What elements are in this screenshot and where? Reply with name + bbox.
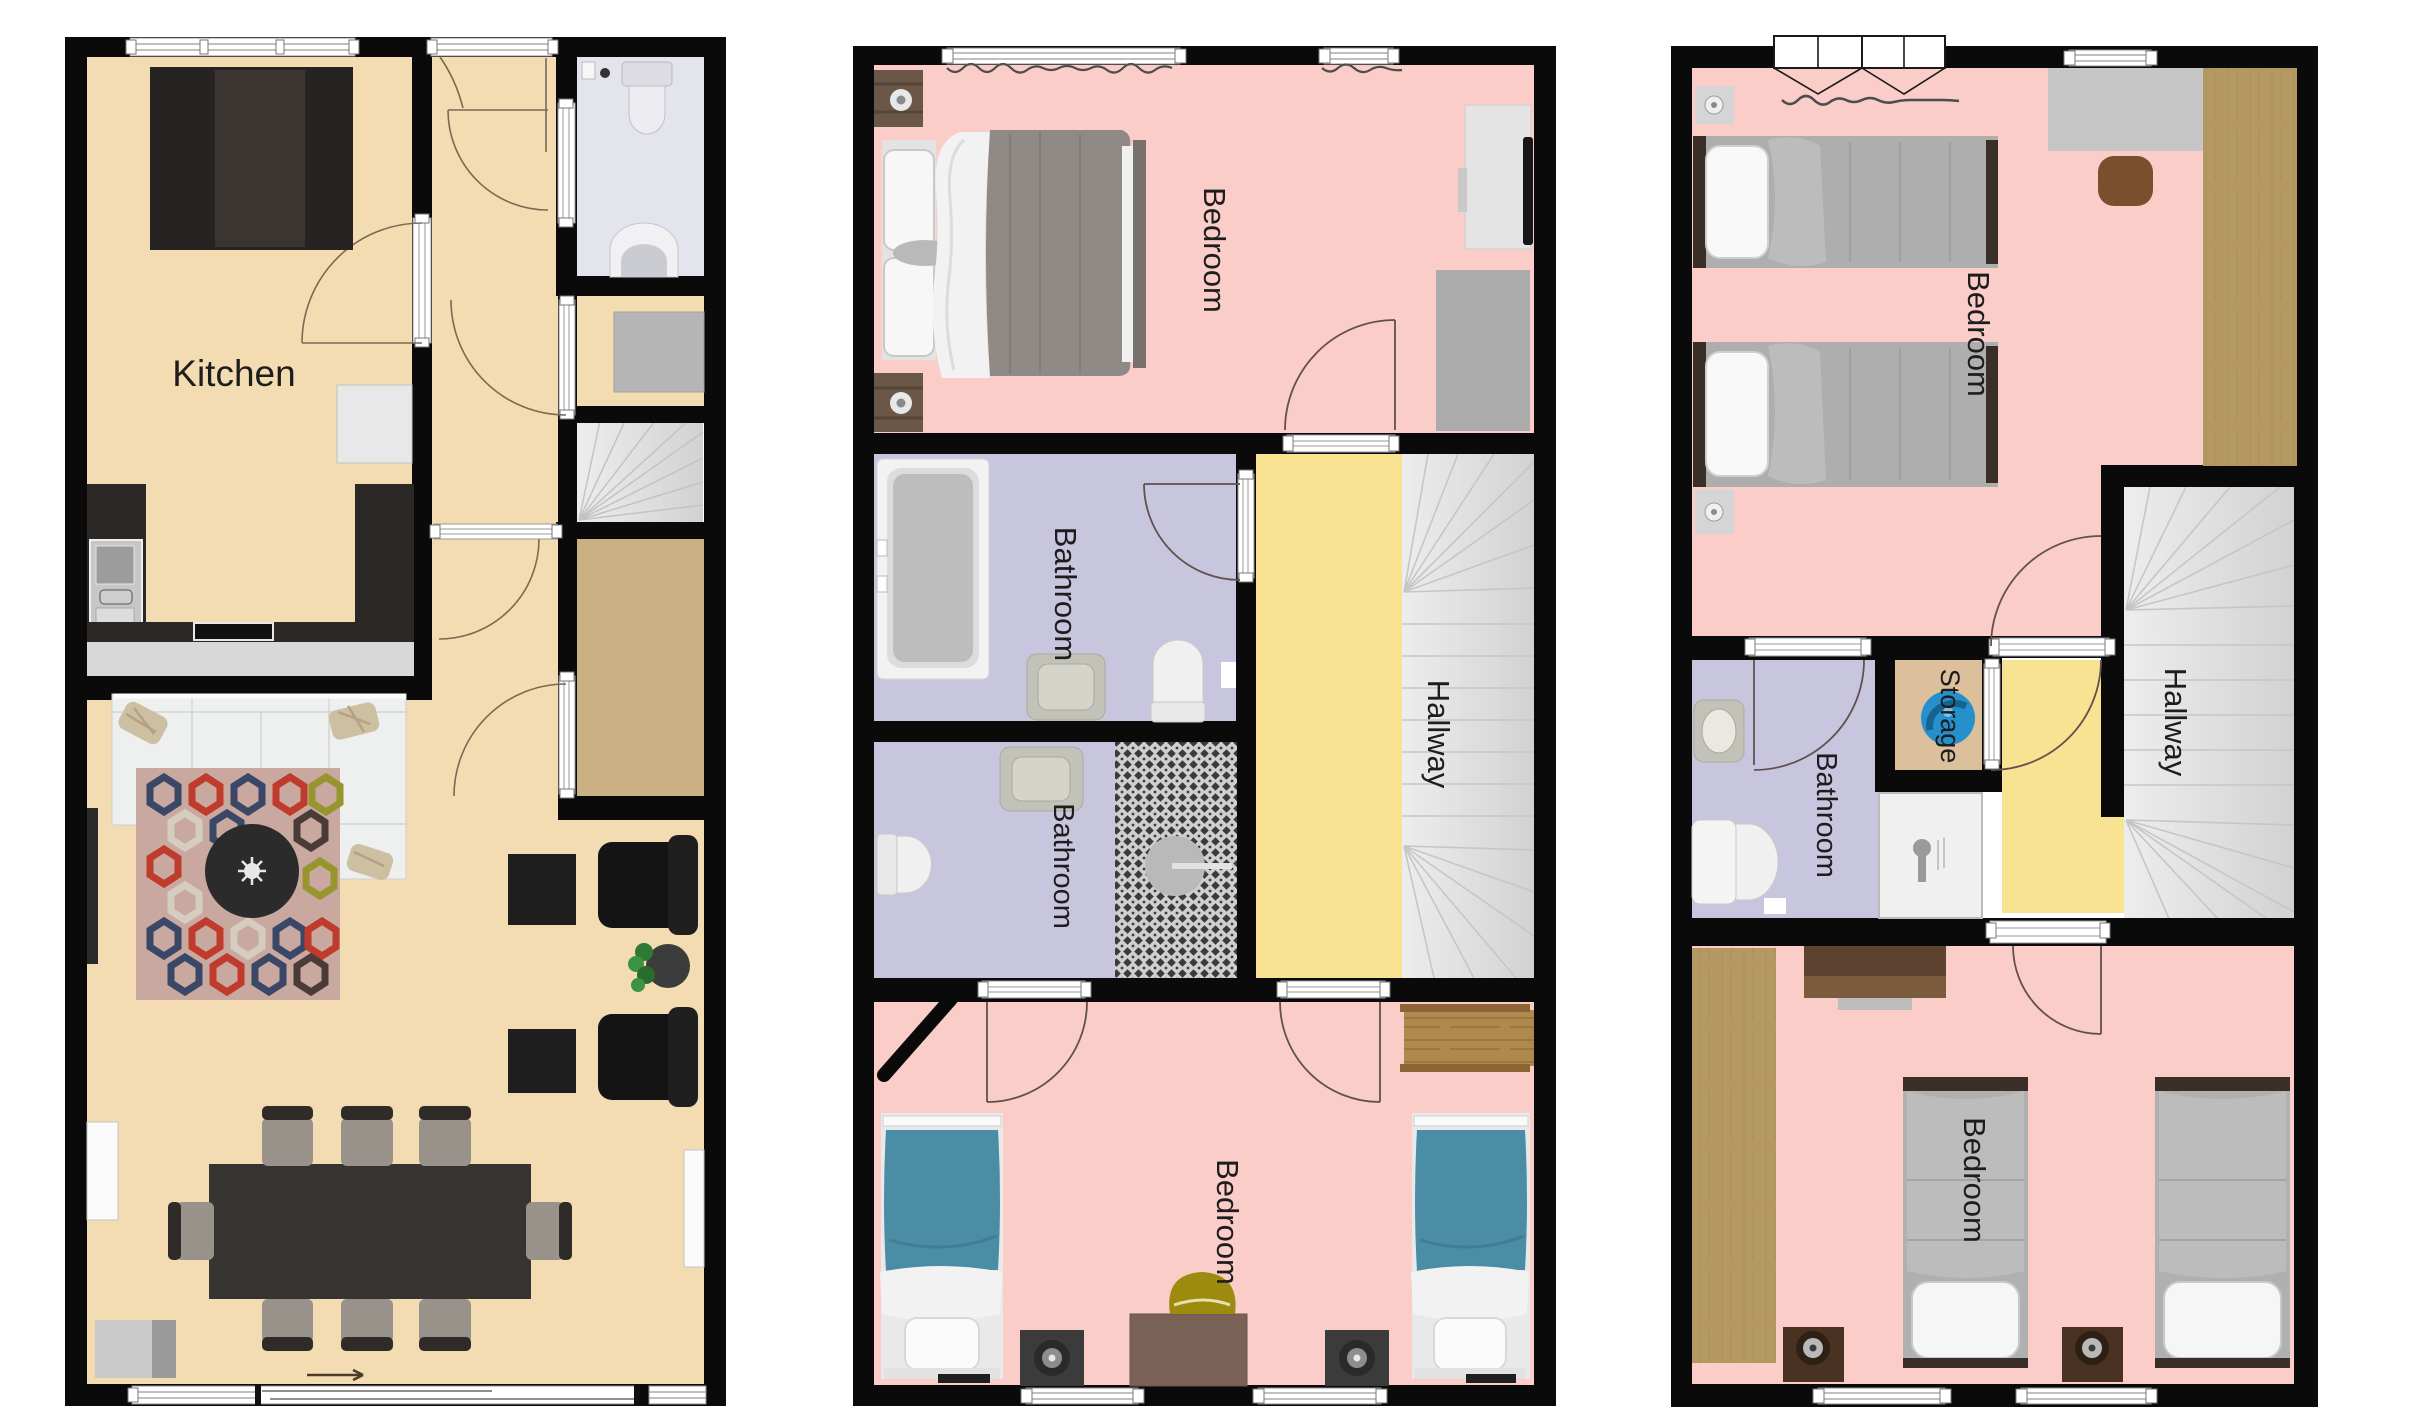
svg-text:Bedroom: Bedroom <box>1197 187 1232 313</box>
svg-text:Bedroom: Bedroom <box>1961 271 1996 397</box>
svg-text:Bathroom: Bathroom <box>1810 752 1842 878</box>
svg-text:Storage: Storage <box>1935 669 1965 764</box>
svg-text:Bathroom: Bathroom <box>1047 803 1079 929</box>
svg-text:Hallway: Hallway <box>1421 680 1456 789</box>
svg-text:Bedroom: Bedroom <box>1957 1117 1992 1243</box>
svg-text:Bedroom: Bedroom <box>1210 1159 1245 1285</box>
svg-text:Kitchen: Kitchen <box>172 353 295 394</box>
svg-text:Hallway: Hallway <box>2158 668 2193 777</box>
svg-text:Bathroom: Bathroom <box>1048 527 1083 661</box>
